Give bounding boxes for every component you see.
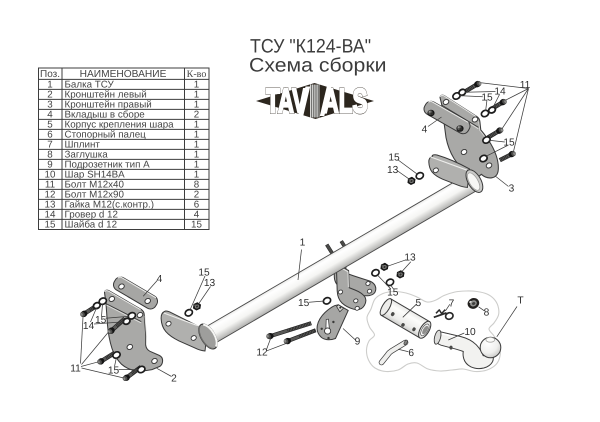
svg-text:13: 13: [387, 165, 399, 176]
svg-text:8: 8: [484, 307, 490, 318]
svg-text:15: 15: [95, 315, 107, 326]
svg-text:12: 12: [256, 348, 268, 359]
svg-text:11: 11: [520, 80, 531, 91]
svg-text:2: 2: [171, 374, 177, 385]
svg-text:15: 15: [388, 153, 400, 164]
svg-text:1: 1: [300, 238, 306, 249]
svg-text:14: 14: [83, 321, 95, 332]
svg-text:10: 10: [464, 327, 476, 338]
svg-text:Схема сборки: Схема сборки: [249, 55, 387, 77]
svg-text:Шайба d 12: Шайба d 12: [65, 219, 118, 230]
svg-text:3: 3: [509, 184, 515, 195]
svg-text:6: 6: [408, 348, 414, 359]
svg-text:15: 15: [387, 288, 399, 299]
svg-text:13: 13: [204, 278, 216, 289]
svg-text:15: 15: [481, 93, 493, 104]
svg-text:Т: Т: [517, 296, 523, 307]
svg-text:14: 14: [494, 87, 506, 98]
svg-text:15: 15: [108, 365, 120, 376]
svg-text:4: 4: [157, 274, 163, 285]
svg-text:7: 7: [449, 298, 455, 309]
svg-text:5: 5: [415, 298, 421, 309]
svg-text:15: 15: [503, 138, 515, 149]
svg-text:11: 11: [70, 364, 81, 375]
svg-text:15: 15: [191, 219, 202, 230]
svg-text:9: 9: [355, 337, 361, 348]
svg-text:4: 4: [422, 125, 428, 136]
svg-text:15: 15: [298, 298, 310, 309]
svg-text:15: 15: [45, 219, 56, 230]
svg-text:15: 15: [198, 268, 210, 279]
svg-text:13: 13: [404, 253, 416, 264]
